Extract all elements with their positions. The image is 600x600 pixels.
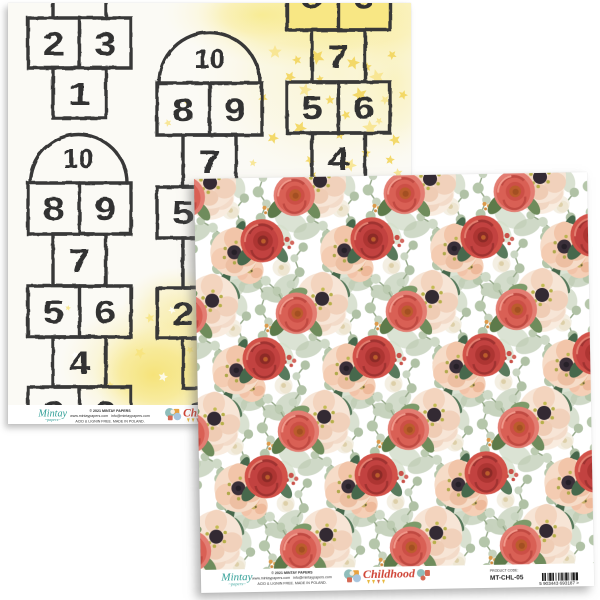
svg-text:4: 4 bbox=[328, 141, 350, 177]
svg-text:8: 8 bbox=[43, 191, 65, 227]
svg-text:5 903443 693187 >: 5 903443 693187 > bbox=[539, 580, 579, 586]
svg-text:2: 2 bbox=[172, 296, 194, 332]
svg-text:7: 7 bbox=[328, 39, 350, 75]
svg-text:ACID & LIGNIN FREE. MADE IN PO: ACID & LIGNIN FREE. MADE IN POLAND. bbox=[75, 419, 144, 423]
svg-text:6: 6 bbox=[94, 294, 116, 330]
svg-text:9: 9 bbox=[224, 92, 246, 128]
svg-text:4: 4 bbox=[69, 345, 91, 381]
svg-text:www.mintaypapers.com info@mi: www.mintaypapers.com info@mintaypapers.c… bbox=[70, 414, 150, 418]
svg-text:6: 6 bbox=[353, 90, 375, 126]
svg-text:8: 8 bbox=[301, 3, 323, 15]
svg-text:PRODUCT CODE:: PRODUCT CODE: bbox=[490, 568, 519, 572]
svg-text:© 2021 MINTAY PAPERS: © 2021 MINTAY PAPERS bbox=[271, 570, 313, 575]
svg-text:7: 7 bbox=[69, 243, 91, 279]
svg-text:8: 8 bbox=[172, 92, 194, 128]
svg-text:10: 10 bbox=[194, 43, 225, 74]
svg-text:5: 5 bbox=[301, 90, 323, 126]
svg-text:Childhood: Childhood bbox=[363, 566, 416, 581]
svg-text:3: 3 bbox=[94, 26, 116, 62]
svg-text:© 2021 MINTAY PAPERS: © 2021 MINTAY PAPERS bbox=[89, 409, 131, 413]
svg-text:10: 10 bbox=[63, 143, 94, 174]
svg-text:~papers~: ~papers~ bbox=[228, 581, 246, 586]
svg-text:MT-CHL-05: MT-CHL-05 bbox=[490, 574, 524, 582]
svg-text:1: 1 bbox=[69, 76, 91, 112]
svg-text:2: 2 bbox=[43, 26, 65, 62]
svg-text:9: 9 bbox=[94, 191, 116, 227]
svg-text:~papers~: ~papers~ bbox=[45, 417, 61, 422]
svg-text:5: 5 bbox=[43, 294, 65, 330]
svg-text:9: 9 bbox=[353, 3, 375, 15]
svg-text:5: 5 bbox=[172, 195, 194, 231]
svg-text:7: 7 bbox=[199, 144, 221, 180]
